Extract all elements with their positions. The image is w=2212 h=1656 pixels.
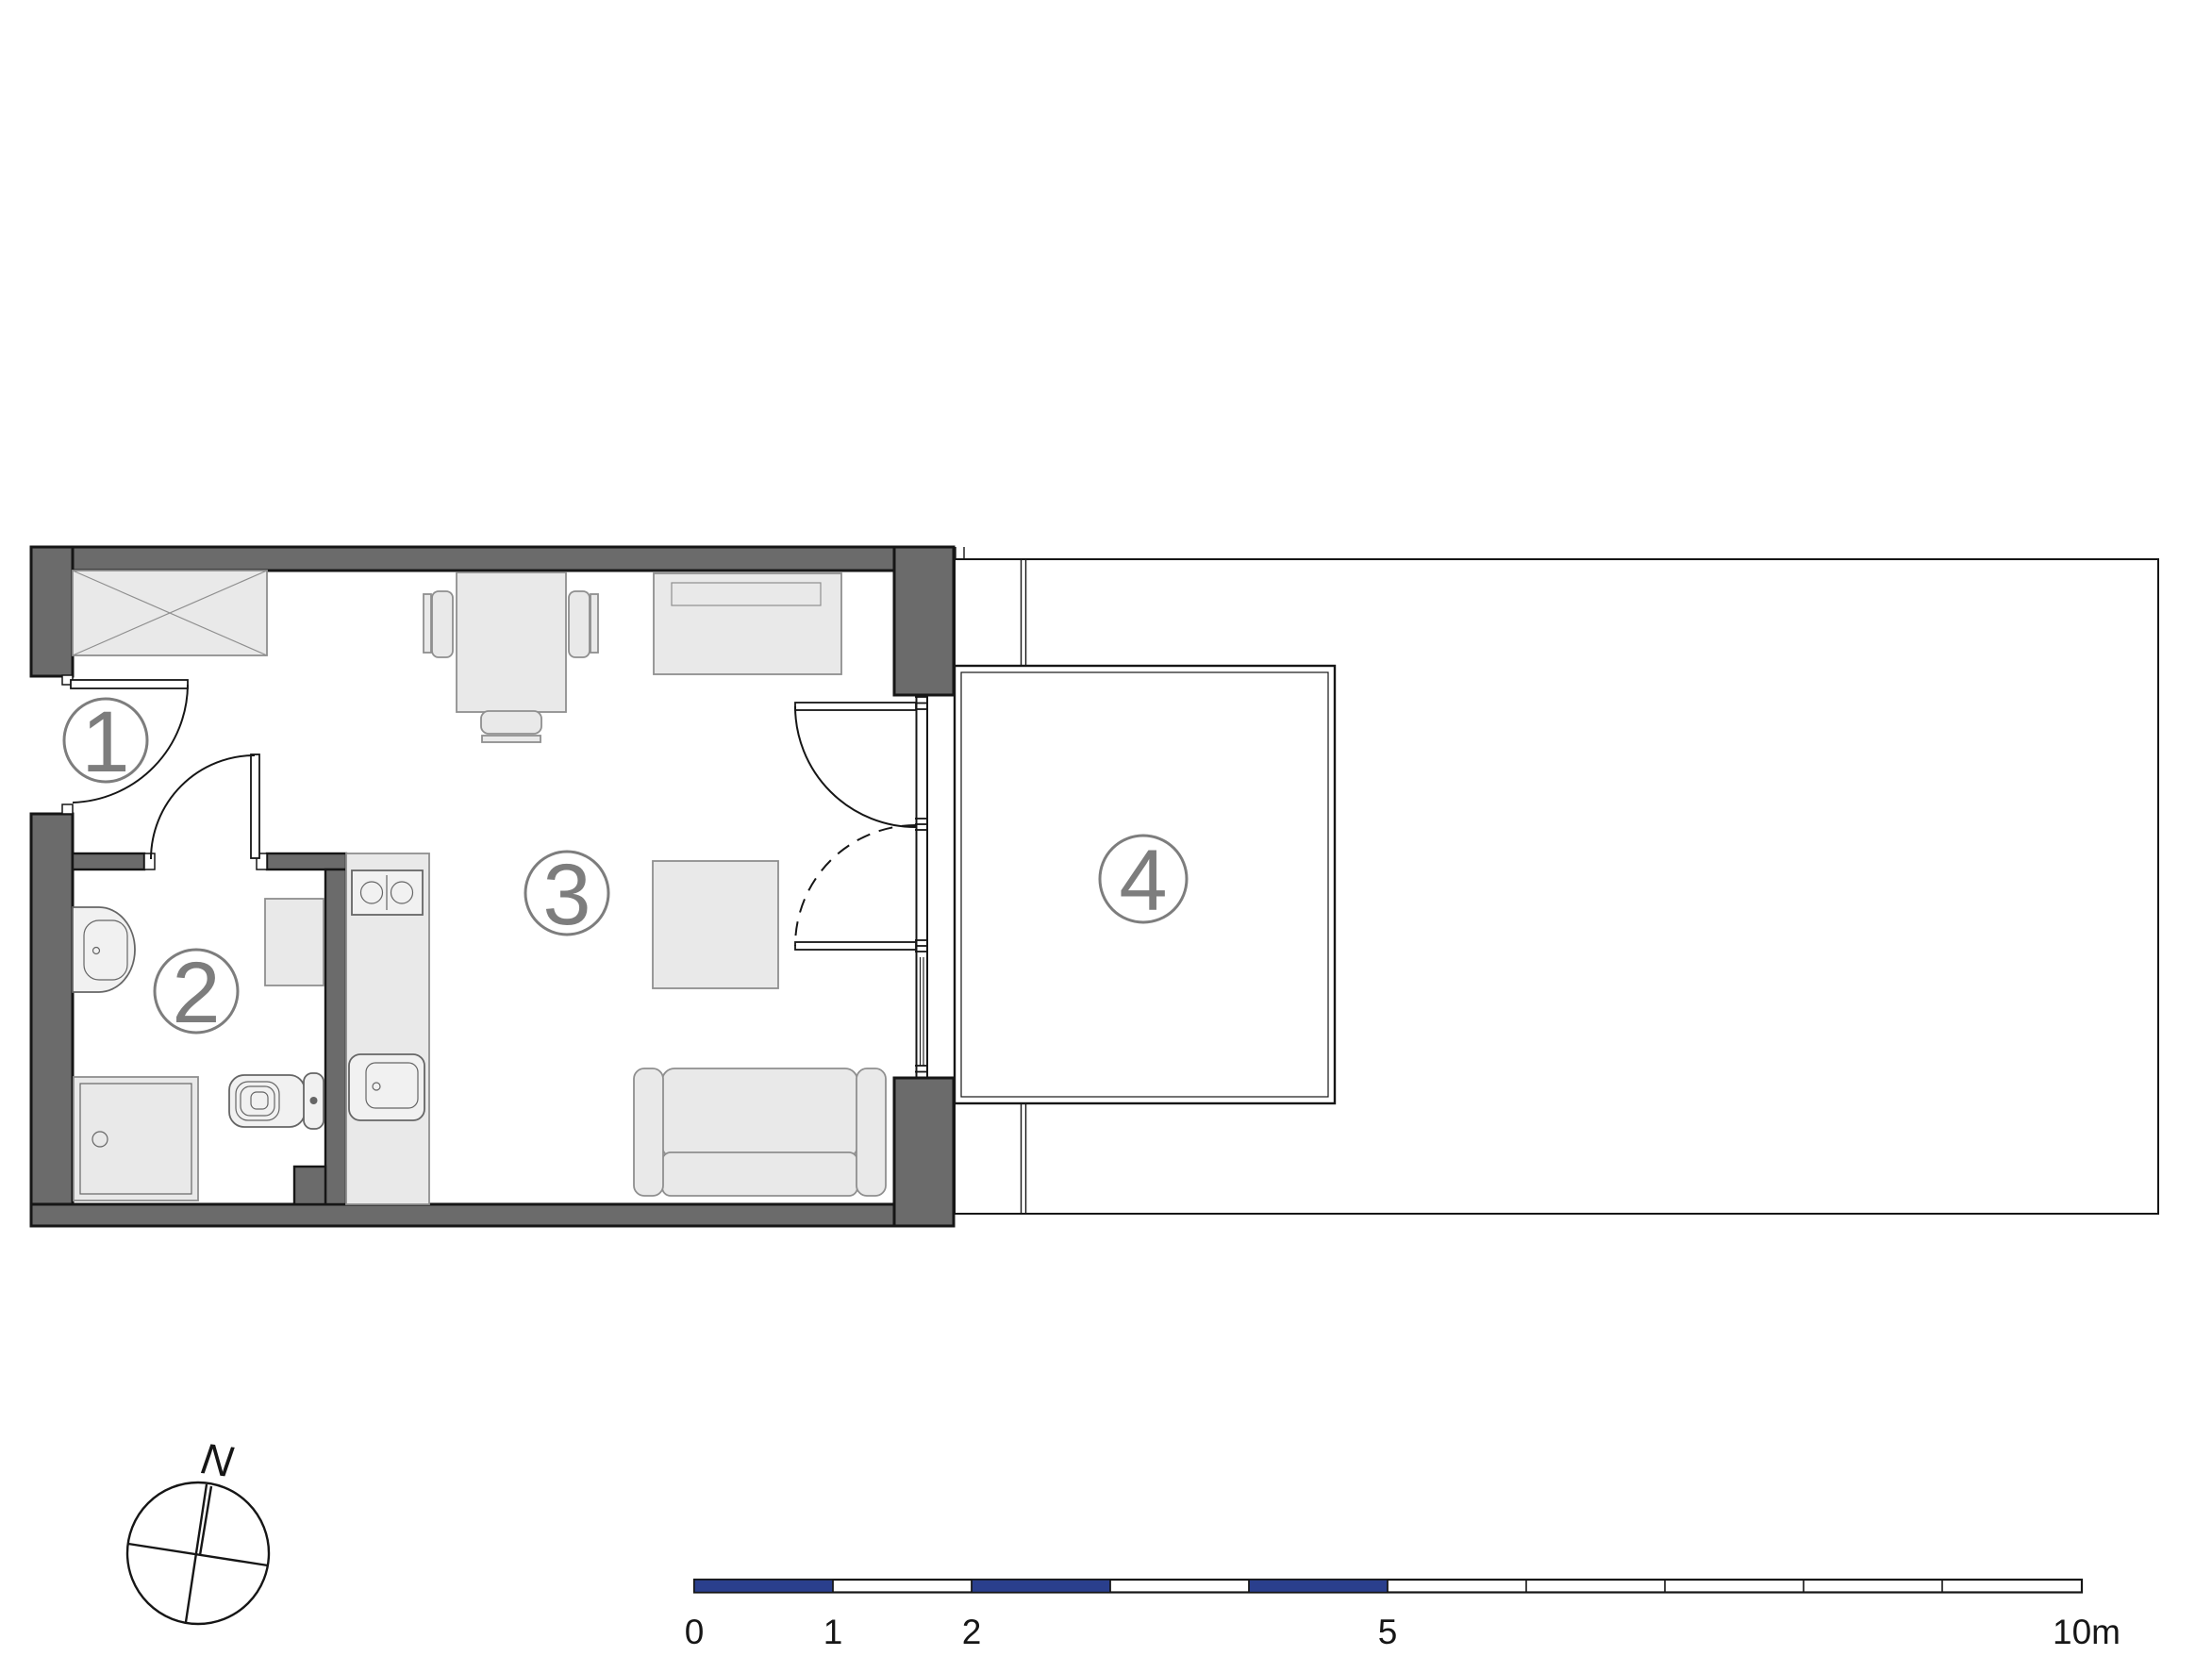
- sofa-arm-left: [634, 1068, 663, 1196]
- wall-corner-top-right: [894, 547, 954, 695]
- wall-left-lower: [31, 814, 73, 1226]
- room-2-number: 2: [172, 945, 220, 1041]
- toilet-flush-button: [310, 1097, 318, 1104]
- scale-bar-segment-2-3: [972, 1580, 1110, 1593]
- shower: [74, 1077, 198, 1201]
- wall-bathroom-step: [294, 1167, 325, 1204]
- chair-bottom-back: [482, 736, 541, 742]
- scale-label-5: 5: [1378, 1613, 1398, 1651]
- wall-top: [31, 547, 954, 571]
- coffee-table: [653, 861, 778, 988]
- wall-bathroom-kitchen: [325, 869, 346, 1204]
- chair-right: [569, 591, 590, 657]
- bathroom-door-leaf: [251, 754, 259, 858]
- toilet: [229, 1073, 324, 1129]
- scale-label-0: 0: [685, 1613, 705, 1651]
- cooktop: [352, 870, 423, 915]
- sofa-seat: [662, 1152, 857, 1196]
- desk-table: [457, 572, 566, 712]
- room-labels: 1 2 3 4: [64, 694, 1187, 1041]
- bathroom-door: [151, 754, 259, 859]
- wall-left-upper: [31, 547, 73, 676]
- wardrobe: [73, 571, 267, 655]
- bathroom-door-jamb: [144, 853, 155, 869]
- wall-bathroom-top-right: [267, 853, 346, 869]
- wall-corner-bottom-right: [894, 1078, 954, 1226]
- bathroom: [73, 899, 324, 1201]
- compass-circle: [127, 1482, 269, 1624]
- entry-door-leaf: [71, 680, 188, 688]
- floor-plan-drawing: 1 2 3 4 N 0 1 2 5: [0, 0, 2212, 1656]
- bathroom-door-swing: [151, 755, 255, 859]
- glazed-wall: [915, 695, 928, 1078]
- north-label: N: [198, 1433, 237, 1486]
- terrace-door: [795, 703, 916, 950]
- sofa-arm-right: [857, 1068, 886, 1196]
- terrace-door-leaf-lower: [795, 942, 916, 950]
- wall-bottom: [31, 1204, 954, 1226]
- terrace-door-swing-lower: [795, 825, 916, 946]
- chair-right-back: [590, 594, 598, 653]
- north-compass: N: [127, 1433, 269, 1624]
- scale-label-2: 2: [962, 1613, 982, 1651]
- sofa-backrest: [662, 1068, 857, 1158]
- wall-bathroom-top-left: [73, 853, 144, 869]
- washbasin: [73, 907, 135, 992]
- terrace-door-swing-upper: [795, 706, 916, 827]
- sideboard-body: [654, 573, 841, 674]
- room-1-number: 1: [81, 694, 129, 790]
- chair-bottom: [481, 711, 541, 734]
- scale-label-1: 1: [823, 1613, 843, 1651]
- scale-bar-segment-4-5: [1249, 1580, 1388, 1593]
- chair-left: [432, 591, 453, 657]
- floor-plan-page: 1 2 3 4 N 0 1 2 5: [0, 0, 2212, 1656]
- room-4-number: 4: [1119, 833, 1167, 929]
- entry-door-jamb: [62, 804, 73, 814]
- washing-machine: [265, 899, 324, 985]
- scale-bar: 0 1 2 5 10m: [685, 1580, 2121, 1651]
- room-3-number: 3: [542, 847, 590, 943]
- sideboard: [654, 573, 841, 674]
- sofa: [634, 1068, 886, 1196]
- chair-left-back: [424, 594, 431, 653]
- scale-bar-segment-0-1: [694, 1580, 833, 1593]
- kitchen: [346, 853, 429, 1204]
- desk-group: [424, 572, 598, 742]
- kitchen-sink: [349, 1054, 424, 1120]
- terrace-door-leaf-upper: [795, 703, 916, 710]
- scale-label-10m: 10m: [2053, 1613, 2121, 1651]
